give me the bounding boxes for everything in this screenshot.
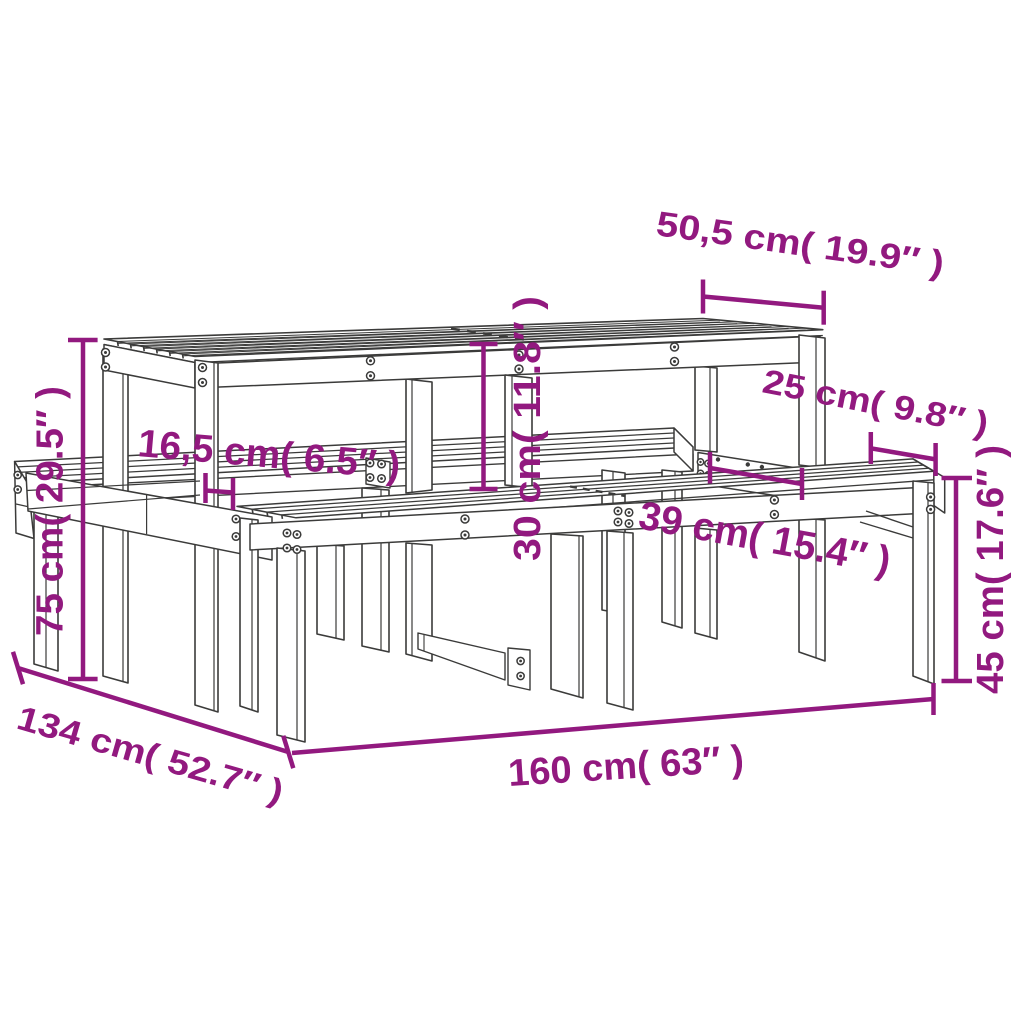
- svg-text:75 cm( 29.5″ ): 75 cm( 29.5″ ): [29, 386, 71, 636]
- svg-text:45 cm( 17.6″ ): 45 cm( 17.6″ ): [970, 445, 1012, 694]
- svg-text:30 cm( 11.8″ ): 30 cm( 11.8″ ): [507, 296, 549, 561]
